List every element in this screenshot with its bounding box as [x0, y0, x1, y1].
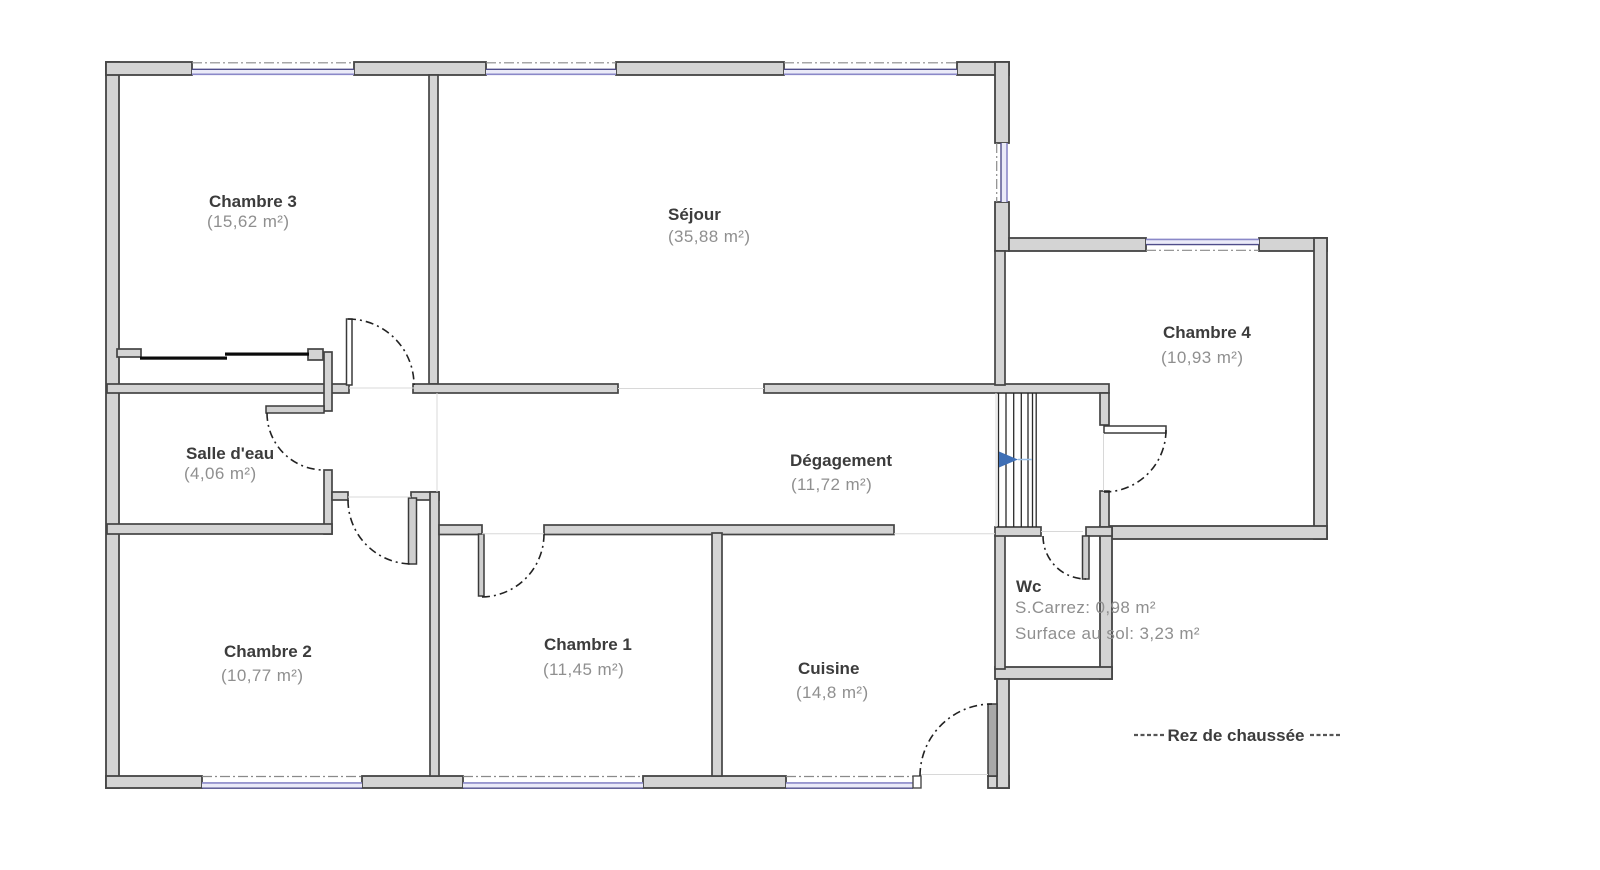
svg-text:Chambre 1: Chambre 1	[544, 635, 632, 654]
svg-text:Wc: Wc	[1016, 577, 1042, 596]
svg-text:(35,88 m²): (35,88 m²)	[668, 227, 750, 246]
svg-text:(15,62 m²): (15,62 m²)	[207, 212, 289, 231]
svg-text:S.Carrez: 0,98 m²: S.Carrez: 0,98 m²	[1015, 598, 1156, 617]
svg-text:Chambre 3: Chambre 3	[209, 192, 297, 211]
svg-text:(11,72 m²): (11,72 m²)	[791, 475, 872, 494]
svg-text:(10,77 m²): (10,77 m²)	[221, 666, 303, 685]
svg-text:Cuisine: Cuisine	[798, 659, 859, 678]
svg-text:(14,8 m²): (14,8 m²)	[796, 683, 869, 702]
svg-text:(11,45 m²): (11,45 m²)	[543, 660, 624, 679]
svg-text:(10,93 m²): (10,93 m²)	[1161, 348, 1243, 367]
svg-text:Salle d'eau: Salle d'eau	[186, 444, 274, 463]
svg-text:Surface au sol: 3,23 m²: Surface au sol: 3,23 m²	[1015, 624, 1200, 643]
svg-text:(4,06 m²): (4,06 m²)	[184, 464, 257, 483]
svg-text:Chambre 4: Chambre 4	[1163, 323, 1251, 342]
svg-text:Dégagement: Dégagement	[790, 451, 892, 470]
svg-text:Chambre 2: Chambre 2	[224, 642, 312, 661]
svg-text:Séjour: Séjour	[668, 205, 721, 224]
svg-text:Rez de chaussée: Rez de chaussée	[1167, 726, 1304, 745]
